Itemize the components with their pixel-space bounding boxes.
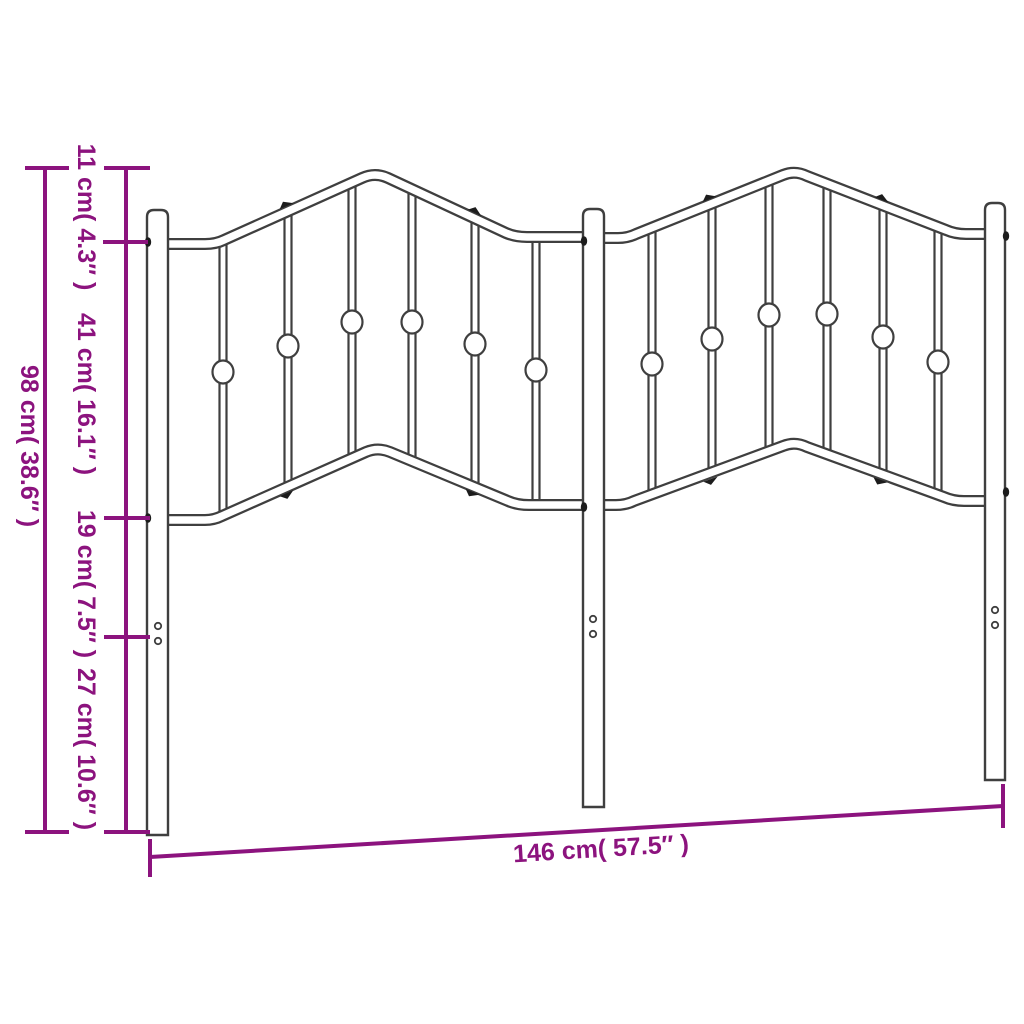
mounting-hole <box>155 623 161 629</box>
diagram-canvas: 98 cm( 38.6″ ) 11 cm( 4.3″ ) 41 cm( 16.1… <box>0 0 1024 1024</box>
baluster-sphere <box>759 304 780 327</box>
mounting-hole <box>992 607 998 613</box>
junction-bolt <box>581 502 587 512</box>
baluster-sphere <box>402 311 423 334</box>
mounting-holes <box>155 607 998 644</box>
mounting-hole <box>590 616 596 622</box>
dim-label-total-height: 98 cm( 38.6″ ) <box>15 365 43 527</box>
right-post <box>985 203 1005 780</box>
baluster-sphere <box>873 326 894 349</box>
headboard-drawing <box>145 173 1009 835</box>
mounting-hole <box>992 622 998 628</box>
top-rail-right-panel <box>604 173 985 238</box>
baluster-sphere <box>702 328 723 351</box>
baluster-sphere <box>642 353 663 376</box>
baluster-sphere <box>465 333 486 356</box>
mounting-hole <box>590 631 596 637</box>
baluster-sphere <box>278 335 299 358</box>
left-post <box>147 210 168 835</box>
segment-dimension-line <box>103 168 150 832</box>
baluster-sphere <box>526 359 547 382</box>
bottom-rail-right-panel <box>604 444 985 505</box>
dim-label-rail-to-holes: 19 cm( 7.5″ ) <box>72 510 100 658</box>
junction-bolt <box>1003 487 1009 497</box>
posts <box>147 203 1005 835</box>
baluster-spheres <box>213 303 949 384</box>
dim-label-panel-height: 41 cm( 16.1″ ) <box>72 313 100 475</box>
baluster-sphere <box>817 303 838 326</box>
mounting-hole <box>155 638 161 644</box>
baluster-sphere <box>342 311 363 334</box>
headboard-dimension-diagram: 98 cm( 38.6″ ) 11 cm( 4.3″ ) 41 cm( 16.1… <box>0 0 1024 1024</box>
dim-label-holes-to-floor: 27 cm( 10.6″ ) <box>72 668 100 830</box>
junction-bolt <box>1003 231 1009 241</box>
junction-bolt <box>581 236 587 246</box>
dim-label-peak-to-top-rail: 11 cm( 4.3″ ) <box>72 144 100 291</box>
baluster-sphere <box>213 361 234 384</box>
baluster-sphere <box>928 351 949 374</box>
